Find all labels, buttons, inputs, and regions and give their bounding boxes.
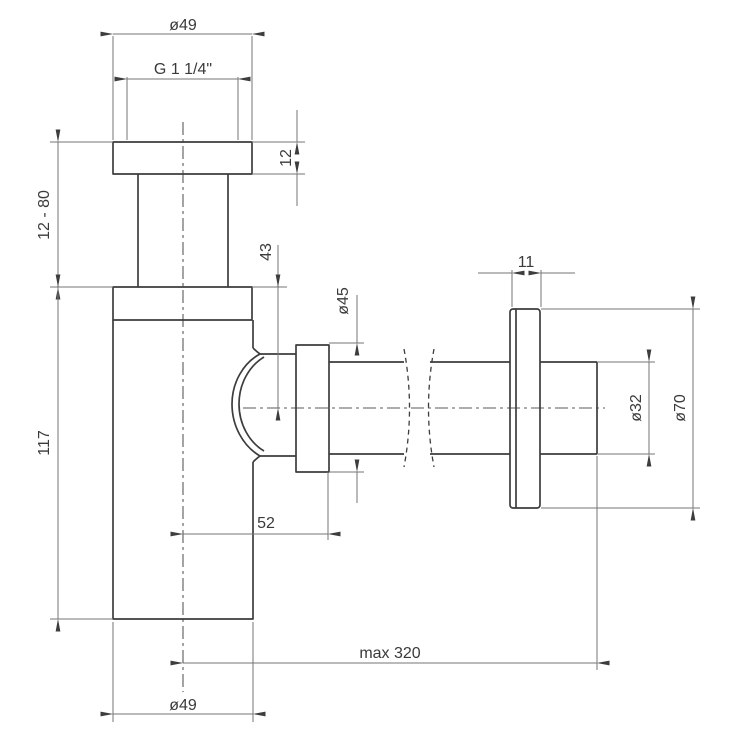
bottle-trap-outline [113,142,597,619]
label-top-diameter: ø49 [169,17,197,34]
drawing-canvas: ø49 G 1 1/4" 12 12 - 80 117 43 ø45 11 ø3… [0,0,740,740]
ext-adjustment-range [50,142,113,287]
technical-drawing: ø49 G 1 1/4" 12 12 - 80 117 43 ø45 11 ø3… [0,0,740,740]
outlet-bend-inner-curve [239,357,264,451]
label-outlet-offset: 43 [258,243,275,261]
ext-wall-flange-width [512,270,541,307]
label-wall-flange-width: 11 [518,254,535,271]
label-body-height: 117 [36,430,53,456]
label-bottom-diameter: ø49 [169,697,197,714]
ext-pipe-diameter [597,362,655,454]
label-adjustment-range: 12 - 80 [36,190,53,240]
label-outlet-horizontal: 52 [257,515,275,532]
label-max-length: max 320 [359,645,420,662]
label-pipe-diameter: ø32 [628,394,645,422]
label-top-flange-height: 12 [278,149,295,167]
label-nut-diameter: ø45 [335,287,352,315]
dimension-labels: ø49 G 1 1/4" 12 12 - 80 117 43 ø45 11 ø3… [36,17,689,714]
label-thread-size: G 1 1/4" [154,61,212,78]
label-wall-flange-diameter: ø70 [672,394,689,422]
